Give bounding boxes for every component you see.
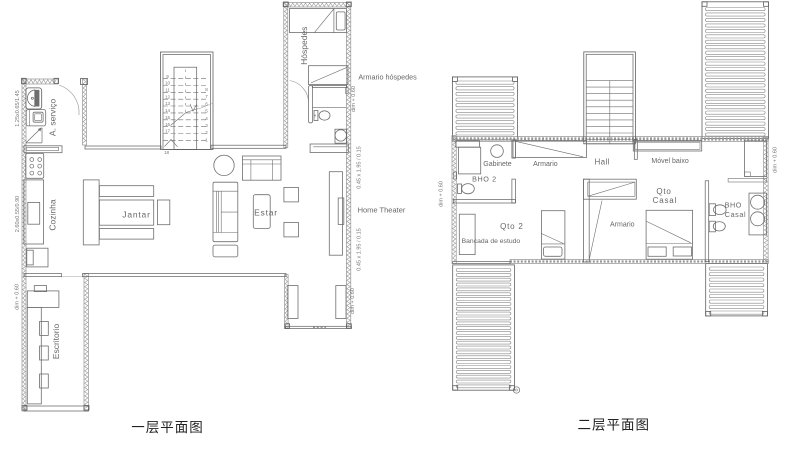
- svg-text:Estar: Estar: [254, 207, 278, 217]
- svg-text:5: 5: [205, 109, 208, 114]
- svg-text:dim + 0.60: dim + 0.60: [351, 86, 357, 112]
- svg-text:15: 15: [165, 115, 171, 120]
- svg-text:Bancada de estudo: Bancada de estudo: [462, 238, 521, 245]
- svg-text:12: 12: [165, 94, 171, 99]
- svg-text:Cozinha: Cozinha: [48, 199, 58, 230]
- svg-text:dim + 0.60: dim + 0.60: [439, 181, 445, 207]
- svg-text:1.25x0.65/1.45: 1.25x0.65/1.45: [15, 90, 21, 126]
- svg-text:一层平面图: 一层平面图: [131, 420, 204, 435]
- svg-text:2.60x0.55/0.90: 2.60x0.55/0.90: [15, 196, 21, 232]
- svg-text:Escritorio: Escritorio: [51, 324, 61, 360]
- svg-text:dim + 0.60: dim + 0.60: [350, 288, 356, 314]
- svg-text:Armario: Armario: [533, 161, 558, 168]
- svg-text:Home Theater: Home Theater: [358, 206, 406, 215]
- svg-text:Qto 2: Qto 2: [500, 222, 524, 231]
- svg-text:A. serviço: A. serviço: [48, 98, 58, 136]
- svg-text:14: 14: [165, 108, 171, 113]
- svg-text:8: 8: [205, 87, 208, 92]
- svg-text:Gabinete: Gabinete: [483, 161, 512, 168]
- svg-text:9: 9: [166, 74, 169, 79]
- svg-text:BHO 2: BHO 2: [472, 174, 497, 183]
- svg-text:Hóspedes: Hóspedes: [299, 27, 309, 65]
- svg-text:11: 11: [165, 88, 170, 93]
- svg-text:6: 6: [205, 101, 208, 106]
- svg-text:18: 18: [164, 150, 170, 155]
- svg-text:0.45 x 1.95 / 0.15: 0.45 x 1.95 / 0.15: [357, 228, 363, 271]
- svg-text:Jantar: Jantar: [122, 210, 150, 220]
- svg-text:13: 13: [165, 101, 171, 106]
- svg-text:17: 17: [165, 129, 171, 134]
- svg-text:3: 3: [205, 123, 208, 128]
- svg-text:0.45 x 1.95 / 0.15: 0.45 x 1.95 / 0.15: [357, 146, 363, 189]
- svg-text:Hall: Hall: [595, 158, 610, 167]
- svg-text:Qto: Qto: [656, 187, 671, 196]
- svg-text:10: 10: [165, 81, 171, 86]
- svg-text:dim + 0.60: dim + 0.60: [772, 147, 778, 173]
- svg-text:4: 4: [205, 116, 208, 121]
- svg-text:2: 2: [205, 130, 208, 135]
- svg-text:二层平面图: 二层平面图: [578, 418, 651, 433]
- svg-text:1: 1: [205, 137, 208, 142]
- svg-text:Armario hóspedes: Armario hóspedes: [358, 73, 417, 82]
- svg-text:Armario: Armario: [610, 222, 635, 229]
- svg-text:BHO: BHO: [725, 201, 742, 210]
- svg-text:Casal: Casal: [653, 196, 677, 205]
- svg-text:Móvel baixo: Móvel baixo: [651, 158, 688, 165]
- svg-text:7: 7: [205, 94, 208, 99]
- svg-text:16: 16: [165, 122, 171, 127]
- svg-text:dim + 0.60: dim + 0.60: [15, 284, 21, 310]
- svg-text:Casal: Casal: [725, 210, 746, 219]
